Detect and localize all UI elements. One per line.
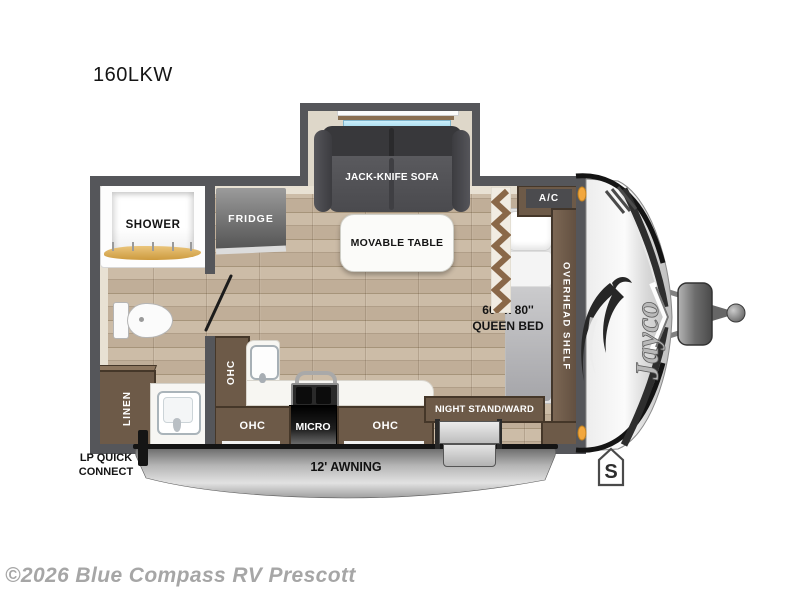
overhead-cabinet-side: OHC: [214, 336, 250, 408]
ac-label: A/C: [539, 193, 559, 204]
bed-sheet-fold: [507, 251, 552, 287]
lp-label-line2: CONNECT: [74, 466, 138, 480]
bed-type-text: QUEEN BED: [458, 318, 558, 334]
marker-light-icon: [578, 426, 586, 440]
lp-label-line1: LP QUICK: [74, 452, 138, 466]
wall-left: [90, 176, 100, 454]
model-title: 160LKW: [93, 64, 173, 87]
floorplan-image: SHOWER FRIDGE LINEN OHC MICRO OHC OHC MO…: [0, 0, 800, 600]
sofa-armrest-left: [314, 130, 332, 212]
curtain-hook-icon: [112, 242, 114, 251]
awning-label: 12' AWNING: [310, 460, 381, 474]
jayco-logo-text: Jayco: [630, 301, 666, 381]
fridge: FRIDGE: [216, 188, 286, 250]
movable-table: MOVABLE TABLE: [340, 214, 454, 272]
lp-quick-connect-label: LP QUICK CONNECT: [74, 452, 138, 479]
night-stand-label: NIGHT STAND/WARD: [435, 404, 534, 415]
bed-pillow: [507, 211, 552, 251]
sofa-armrest-right: [452, 130, 470, 212]
hitch-coupler-ball: [727, 304, 745, 322]
badge-letter: S: [604, 461, 617, 483]
marker-light-icon: [578, 187, 586, 201]
kitchen-faucet-icon: [259, 373, 266, 383]
slideout-wall-top: [300, 103, 480, 111]
bathroom-door: [198, 268, 242, 334]
curtain-hook-icon: [190, 242, 192, 251]
linen-label: LINEN: [122, 391, 133, 426]
ohc-label: OHC: [373, 420, 399, 432]
door-swing-line: [206, 276, 231, 330]
sofa-seat-seam: [389, 158, 394, 210]
slideout-wall-right: [472, 103, 480, 186]
curtain-hook-icon: [152, 242, 154, 251]
sofa-backrest-seam: [389, 128, 394, 158]
slideout-wall-left: [300, 103, 308, 186]
fridge-label: FRIDGE: [228, 213, 274, 225]
propane-tank-cover: [678, 283, 712, 345]
awning: 12' AWNING: [128, 440, 564, 504]
ohc-label: OHC: [226, 359, 237, 384]
movable-table-label: MOVABLE TABLE: [351, 237, 444, 249]
lp-quick-connect-port: [138, 430, 148, 466]
dealer-watermark: ©2026 Blue Compass RV Prescott: [5, 564, 356, 588]
front-cap: Jayco: [566, 165, 776, 465]
entry-step-upper: [439, 421, 500, 444]
curtain-hook-icon: [132, 242, 134, 251]
stealth-badge: S: [597, 447, 625, 489]
toilet-flush-icon: [139, 317, 144, 322]
curtain-hook-icon: [172, 242, 174, 251]
wall-top-left: [90, 176, 300, 186]
night-stand: NIGHT STAND/WARD: [424, 396, 545, 423]
bathroom-wall-lower: [205, 336, 215, 444]
bathroom-faucet-icon: [173, 418, 181, 432]
burner-icon: [316, 387, 331, 404]
burner-icon: [296, 387, 312, 404]
bed-ladder: [491, 187, 511, 313]
kitchen-counter-horizontal: [246, 380, 434, 406]
entry-step-lower: [443, 444, 496, 467]
bathroom-wall-upper: [205, 186, 215, 274]
sofa-label: JACK-KNIFE SOFA: [330, 172, 454, 183]
ohc-label: OHC: [240, 420, 266, 432]
microwave-label: MICRO: [296, 421, 331, 433]
shower-label: SHOWER: [104, 219, 202, 231]
